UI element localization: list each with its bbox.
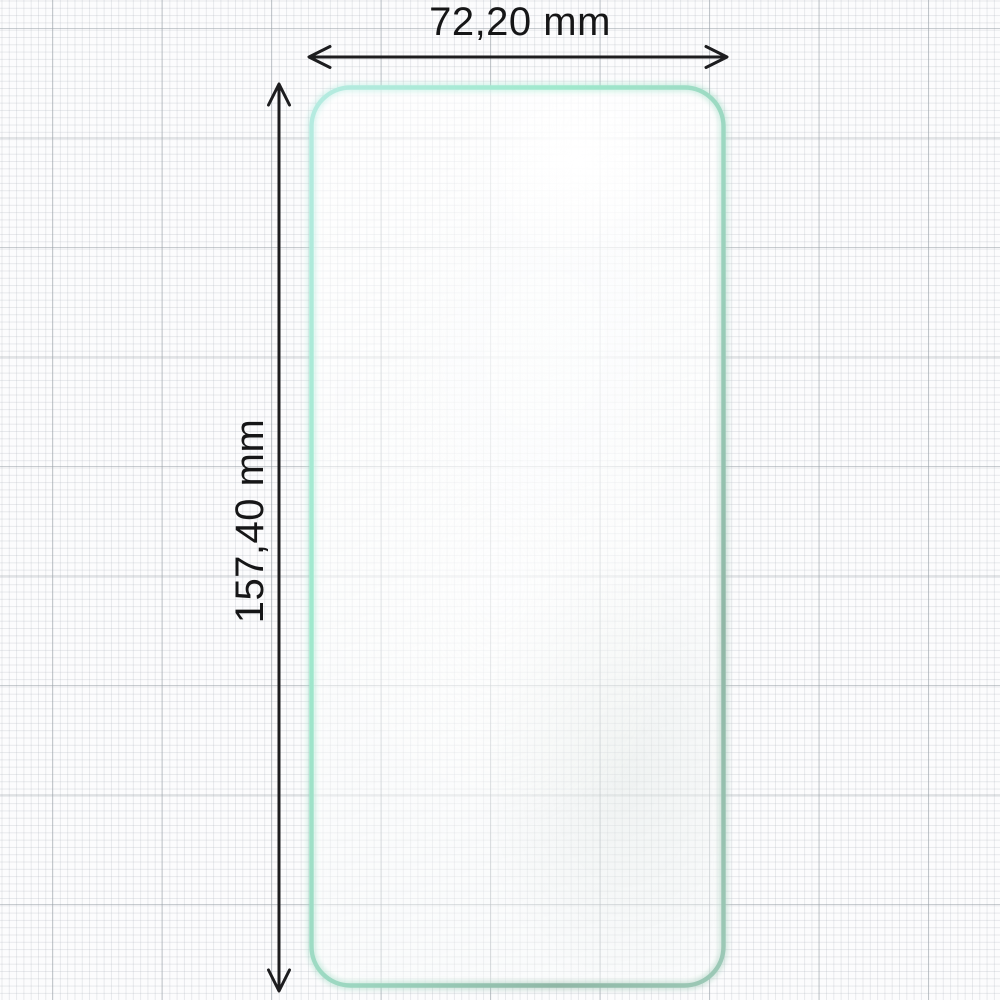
diagram-overlay [0, 0, 1000, 1000]
dimension-diagram: 72,20 mm 157,40 mm [0, 0, 1000, 1000]
width-dimension-arrow [309, 47, 727, 68]
film-border [312, 88, 724, 986]
width-dimension-label: 72,20 mm [429, 2, 611, 42]
height-dimension-label: 157,40 mm [230, 419, 270, 624]
